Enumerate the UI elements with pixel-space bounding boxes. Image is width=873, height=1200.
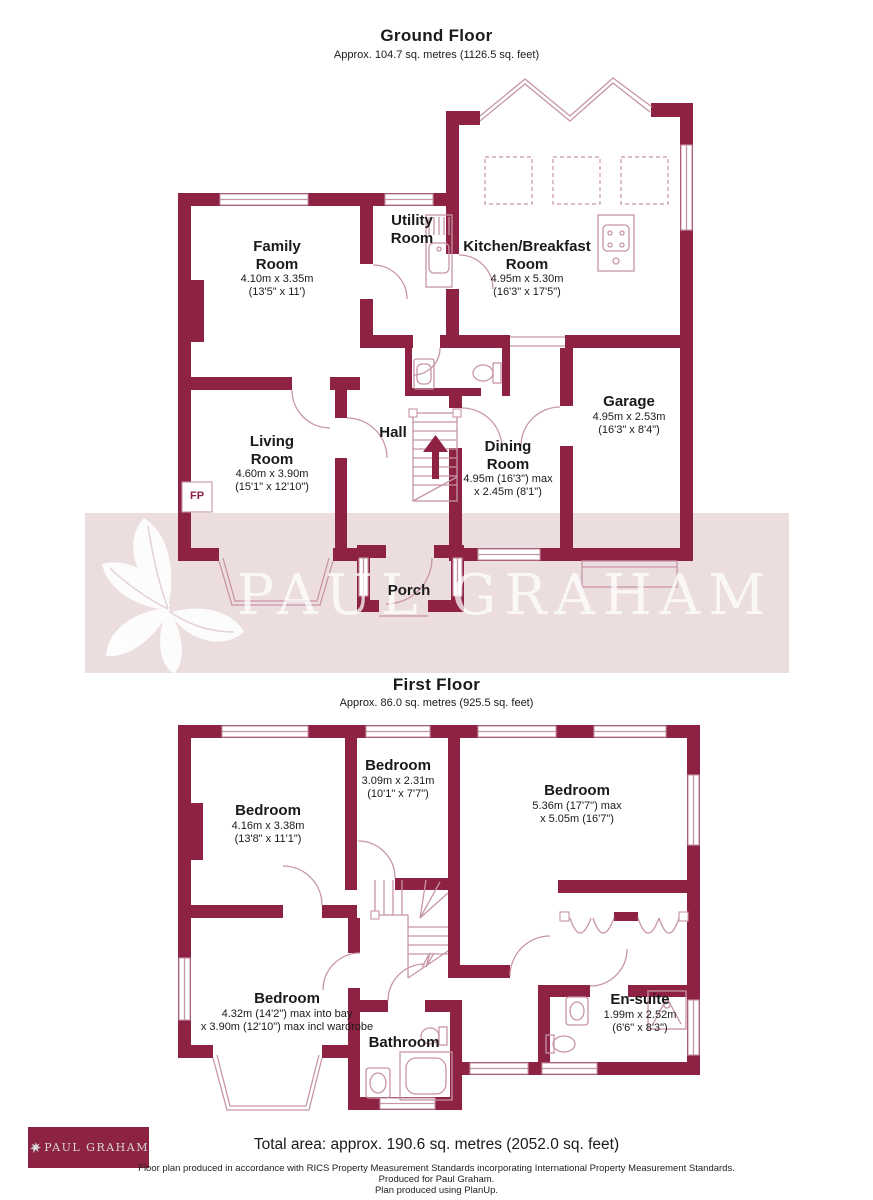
- room-label-bedroom-3: Bedroom 5.36m (17'7") max x 5.05m (16'7"…: [532, 782, 621, 826]
- room-label-en-suite: En-suite 1.99m x 2.52m (6'6" x 8'3"): [604, 991, 677, 1035]
- room-label-kitchen-breakfast-room: Kitchen/Breakfast Room 4.95m x 5.30m (16…: [463, 238, 591, 299]
- kitchen-island-icon: [598, 215, 634, 271]
- room-name: Living: [235, 433, 309, 451]
- room-label-utility-room: Utility Room: [391, 212, 434, 247]
- room-name: Room: [235, 451, 309, 469]
- room-label-bedroom-4: Bedroom 4.32m (14'2") max into bay x 3.9…: [201, 990, 373, 1034]
- footer-line-1: Floor plan produced in accordance with R…: [0, 1163, 873, 1174]
- room-name: Utility: [391, 212, 434, 230]
- room-label-family-room: Family Room 4.10m x 3.35m (13'5" x 11'): [241, 238, 314, 299]
- room-dims: 4.95m x 2.53m: [593, 411, 666, 424]
- room-name: Room: [463, 456, 552, 474]
- room-name: Bedroom: [232, 802, 305, 820]
- wc-sink-icon: [414, 359, 434, 389]
- room-label-porch: Porch: [388, 582, 431, 600]
- room-dims: (16'3" x 8'4"): [593, 424, 666, 437]
- room-name: Bedroom: [362, 757, 435, 775]
- floorplan-page: PAUL GRAHAM Ground Floor Approx. 104.7 s…: [0, 0, 873, 1200]
- room-name: Room: [463, 256, 591, 274]
- bay-window-icon: [213, 1055, 322, 1110]
- ground-floor-area: Approx. 104.7 sq. metres (1126.5 sq. fee…: [0, 49, 873, 61]
- room-name: Bedroom: [201, 990, 373, 1008]
- room-dims: 5.36m (17'7") max: [532, 800, 621, 813]
- room-name: Dining: [463, 438, 552, 456]
- footer-line-3: Plan produced using PlanUp.: [0, 1185, 873, 1196]
- bathtub-icon: [400, 1052, 452, 1100]
- room-dims: (13'8" x 11'1"): [232, 833, 305, 846]
- room-dims: (6'6" x 8'3"): [604, 1022, 677, 1035]
- room-name: Bathroom: [369, 1034, 440, 1052]
- room-label-bathroom: Bathroom: [369, 1034, 440, 1052]
- ensuite-sink-icon: [566, 997, 588, 1025]
- room-name: Bedroom: [532, 782, 621, 800]
- room-dims: (13'5" x 11'): [241, 286, 314, 299]
- room-label-bedroom-2: Bedroom 3.09m x 2.31m (10'1" x 7'7"): [362, 757, 435, 801]
- stairs-icon: [371, 880, 448, 978]
- room-label-dining-room: Dining Room 4.95m (16'3") max x 2.45m (8…: [463, 438, 552, 499]
- room-name: En-suite: [604, 991, 677, 1009]
- room-label-bedroom-1: Bedroom 4.16m x 3.38m (13'8" x 11'1"): [232, 802, 305, 846]
- room-dims: 4.32m (14'2") max into bay: [201, 1008, 373, 1021]
- room-dims: (10'1" x 7'7"): [362, 788, 435, 801]
- watermark-text: PAUL GRAHAM: [225, 561, 785, 631]
- total-area: Total area: approx. 190.6 sq. metres (20…: [0, 1136, 873, 1154]
- room-name: Room: [391, 230, 434, 248]
- room-dims: (15'1" x 12'10"): [235, 481, 309, 494]
- room-label-garage: Garage 4.95m x 2.53m (16'3" x 8'4"): [593, 393, 666, 437]
- skylight-icon: [485, 157, 668, 204]
- room-dims: x 3.90m (12'10") max incl wardrobe: [201, 1021, 373, 1034]
- wc-toilet-icon: [473, 363, 501, 383]
- room-name: Garage: [593, 393, 666, 411]
- room-name: Porch: [388, 582, 431, 600]
- footer-line-2: Produced for Paul Graham.: [0, 1174, 873, 1185]
- fireplace-label: FP: [190, 490, 204, 502]
- room-dims: 4.60m x 3.90m: [235, 468, 309, 481]
- room-dims: (16'3" x 17'5"): [463, 286, 591, 299]
- ground-floor-title: Ground Floor: [0, 26, 873, 46]
- room-dims: 3.09m x 2.31m: [362, 775, 435, 788]
- room-dims: 1.99m x 2.52m: [604, 1009, 677, 1022]
- room-name: Kitchen/Breakfast: [463, 238, 591, 256]
- room-dims: 4.16m x 3.38m: [232, 820, 305, 833]
- first-floor-title: First Floor: [0, 675, 873, 695]
- room-dims: 4.10m x 3.35m: [241, 273, 314, 286]
- bathroom-sink-icon: [366, 1068, 390, 1098]
- ensuite-toilet-icon: [546, 1035, 575, 1053]
- room-dims: 4.95m (16'3") max: [463, 473, 552, 486]
- room-name: Family: [241, 238, 314, 256]
- ground-floor-plan: [170, 75, 710, 620]
- first-floor-area: Approx. 86.0 sq. metres (925.5 sq. feet): [0, 697, 873, 709]
- bifold-doors-icon: [480, 78, 652, 121]
- room-name: Hall: [379, 424, 407, 442]
- room-dims: x 5.05m (16'7"): [532, 813, 621, 826]
- room-label-living-room: Living Room 4.60m x 3.90m (15'1" x 12'10…: [235, 433, 309, 494]
- first-floor-plan: [170, 715, 710, 1145]
- room-name: Room: [241, 256, 314, 274]
- room-dims: x 2.45m (8'1"): [463, 486, 552, 499]
- room-dims: 4.95m x 5.30m: [463, 273, 591, 286]
- room-label-hall: Hall: [379, 424, 407, 442]
